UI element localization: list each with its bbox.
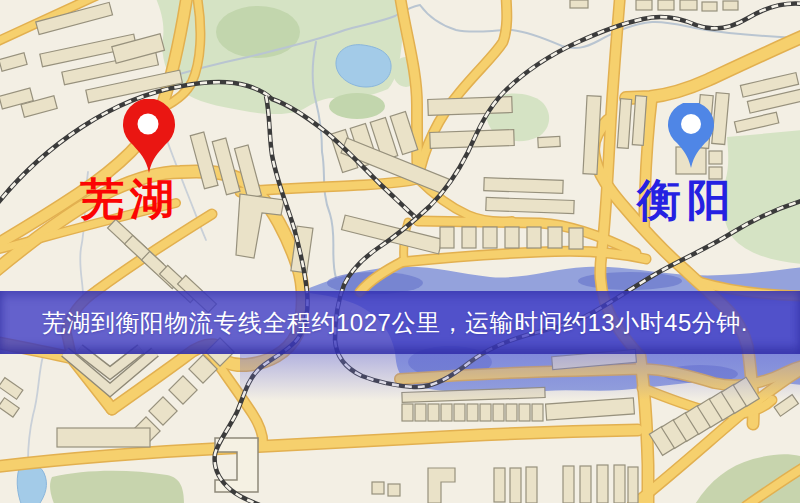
map-canvas: [0, 0, 800, 503]
destination-pin: [667, 103, 715, 169]
pin-inner-circle: [681, 114, 701, 134]
red-map-pin-icon: [123, 99, 175, 173]
blue-map-pin-icon: [668, 103, 714, 168]
destination-label: 衡阳: [637, 179, 737, 223]
map-screenshot: 芜湖 衡阳 芜湖到衡阳物流专线全程约1027公里，运输时间约13小时45分钟.: [0, 0, 800, 503]
banner-fade-shadow: [240, 354, 800, 400]
origin-label: 芜湖: [80, 178, 180, 222]
route-info-banner: 芜湖到衡阳物流专线全程约1027公里，运输时间约13小时45分钟.: [0, 291, 800, 354]
route-info-text: 芜湖到衡阳物流专线全程约1027公里，运输时间约13小时45分钟.: [42, 291, 748, 354]
origin-pin: [121, 99, 177, 175]
pin-inner-circle: [138, 114, 159, 135]
